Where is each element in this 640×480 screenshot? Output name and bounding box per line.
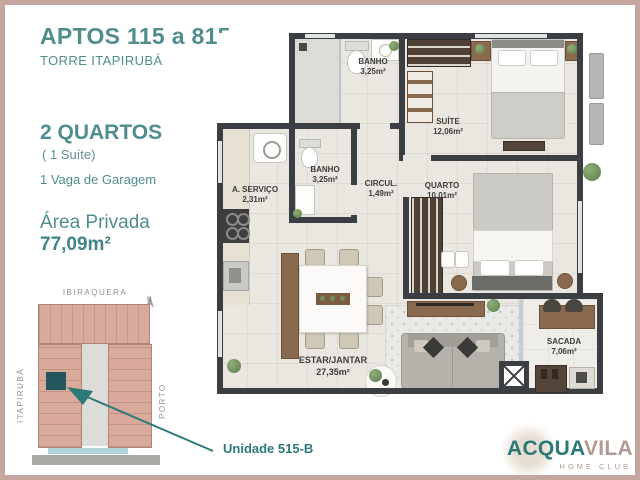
sofa-pillow: [476, 340, 490, 352]
washer-drum: [263, 141, 281, 159]
room-label-suite: SUÍTE 12,06m²: [413, 117, 483, 138]
stove: [223, 209, 249, 243]
wall: [289, 217, 357, 223]
room-area: 27,35m²: [283, 367, 383, 379]
room-name: A. SERVIÇO: [219, 185, 291, 195]
window: [305, 34, 335, 38]
window: [218, 311, 222, 357]
room-name: CIRCUL.: [357, 179, 405, 189]
wall: [399, 33, 405, 155]
plant-icon: [475, 44, 485, 54]
plant-icon: [487, 299, 500, 312]
dining-chair: [305, 249, 325, 266]
dining-table: [299, 265, 367, 333]
page-title: APTOS 115 a 815: [40, 23, 231, 50]
site-base: [32, 455, 160, 465]
toilet: [299, 139, 319, 167]
room-label-servico: A. SERVIÇO 2,31m²: [219, 185, 291, 206]
room-name: BANHO: [301, 165, 349, 175]
bedroom-wardrobe: [411, 197, 443, 295]
courtyard: [80, 344, 108, 446]
room-area: 12,06m²: [413, 127, 483, 137]
dining-chair: [305, 332, 325, 349]
decor-bowl: [382, 379, 389, 386]
dining-chair: [366, 277, 383, 297]
burner: [237, 227, 250, 240]
building-wing-right: [108, 344, 152, 448]
sofa-seam: [452, 348, 453, 386]
suite-bed-blanket: [491, 92, 565, 139]
window: [578, 201, 582, 273]
garage-note: 1 Vaga de Garagem: [40, 172, 156, 187]
room-area: 10,01m²: [413, 191, 471, 201]
plant-icon: [227, 359, 241, 373]
suite-bench: [503, 141, 545, 151]
balcony-sink: [569, 367, 595, 389]
room-name: BANHO: [341, 57, 405, 67]
tv-sideboard: [407, 301, 485, 317]
building-wing-left: [38, 344, 82, 448]
street-label-left: ITAPIRUBÁ: [16, 340, 25, 450]
table-tray: [316, 293, 350, 305]
bedrooms-heading: 2 QUARTOS: [40, 121, 162, 145]
bench-cushion: [543, 299, 561, 312]
wall: [399, 155, 403, 161]
pouf: [455, 251, 469, 268]
dining-chair: [339, 332, 359, 349]
brand-part1: ACQUA: [507, 437, 584, 460]
bench-cushion: [565, 299, 583, 312]
wall: [403, 197, 409, 299]
room-label-circulacao: CIRCUL. 1,49m²: [357, 179, 405, 200]
bottle: [541, 369, 547, 379]
plant-icon: [320, 296, 325, 301]
room-label-sacada: SACADA 7,06m²: [533, 337, 595, 358]
pillow: [498, 50, 526, 66]
room-name: SUÍTE: [413, 117, 483, 127]
plant-icon: [567, 44, 577, 54]
window: [218, 141, 222, 183]
window: [475, 34, 547, 38]
room-name: SACADA: [533, 337, 595, 347]
room-area: 3,25m²: [301, 175, 349, 185]
dining-chair: [366, 305, 383, 325]
shower-head: [299, 43, 307, 51]
plant-icon: [340, 296, 345, 301]
private-area-label: Área Privada: [40, 212, 150, 234]
suite-bed: [491, 39, 565, 139]
room-name: QUARTO: [413, 181, 471, 191]
room-area: 2,31m²: [219, 195, 291, 205]
room-area: 1,49m²: [357, 189, 405, 199]
room-label-estar-jantar: ESTAR/JANTAR 27,35m²: [283, 355, 383, 378]
pillow: [480, 260, 510, 276]
suite-bed-headboard: [492, 40, 564, 48]
apartment-flyer: APTOS 115 a 815 TORRE ITAPIRUBÁ 2 QUARTO…: [0, 0, 640, 480]
barbecue-grill: [535, 365, 567, 393]
plan-notch: [217, 33, 289, 123]
unit-callout: Unidade 515-B: [223, 441, 313, 456]
dining-chair: [339, 249, 359, 266]
sink-basin: [576, 372, 587, 383]
building-block-top: [38, 304, 150, 344]
sink-basin: [229, 268, 241, 283]
suite-shelf: [407, 71, 433, 123]
bedroom-bed-sheet: [473, 230, 553, 262]
room-label-banho-social: BANHO 3,25m²: [301, 165, 349, 186]
shaft-x-box: [499, 361, 529, 391]
ac-unit: [589, 53, 604, 99]
washing-machine: [253, 133, 287, 163]
compass-label: N: [147, 297, 151, 303]
suite-wardrobe: [407, 39, 471, 67]
wall: [431, 155, 583, 161]
tower-subtitle: TORRE ITAPIRUBÁ: [40, 53, 163, 68]
bedroom-bed: [473, 173, 553, 291]
street-label-right: PORTO: [158, 346, 167, 456]
wall: [597, 293, 603, 394]
room-area: 7,06m²: [533, 347, 595, 357]
room-label-banho-suite: BANHO 3,25m²: [341, 57, 405, 78]
site-map: IBIRAQUERA N ITAPIRUBÁ PORTO: [20, 288, 188, 470]
tv: [416, 303, 474, 306]
dining-bench: [281, 253, 299, 359]
room-name: ESTAR/JANTAR: [283, 355, 383, 367]
brand-tagline: HOME CLUB: [495, 462, 631, 471]
street-label-top: IBIRAQUERA: [30, 288, 160, 297]
shower: [295, 39, 341, 123]
room-label-quarto: QUARTO 10,01m²: [413, 181, 471, 202]
brand-part2: VILA: [584, 437, 633, 460]
plant-icon: [389, 41, 399, 51]
pillow: [514, 260, 544, 276]
sofa: [401, 333, 505, 389]
room-area: 3,25m²: [341, 67, 405, 77]
ac-unit: [589, 103, 604, 145]
bedside-stool: [451, 275, 467, 291]
pouf: [441, 251, 455, 268]
suite-note: ( 1 Suíte): [42, 147, 95, 162]
bush-icon: [583, 163, 601, 181]
plant-icon: [293, 209, 302, 218]
kitchen-sink: [223, 261, 249, 291]
bottle: [552, 369, 558, 379]
bedside-stool: [557, 273, 573, 289]
brand-name: ACQUAVILA: [495, 437, 633, 461]
burner: [237, 213, 250, 226]
wall: [351, 129, 357, 185]
plant-icon: [330, 296, 335, 301]
wall: [289, 33, 295, 129]
pillow: [530, 50, 558, 66]
pool-strip: [48, 448, 128, 454]
bedroom-bed-headboard: [472, 276, 552, 290]
private-area-value: 77,09m²: [40, 234, 111, 256]
highlighted-unit: [46, 372, 66, 390]
brand-logo: ACQUAVILA HOME CLUB: [493, 425, 635, 477]
